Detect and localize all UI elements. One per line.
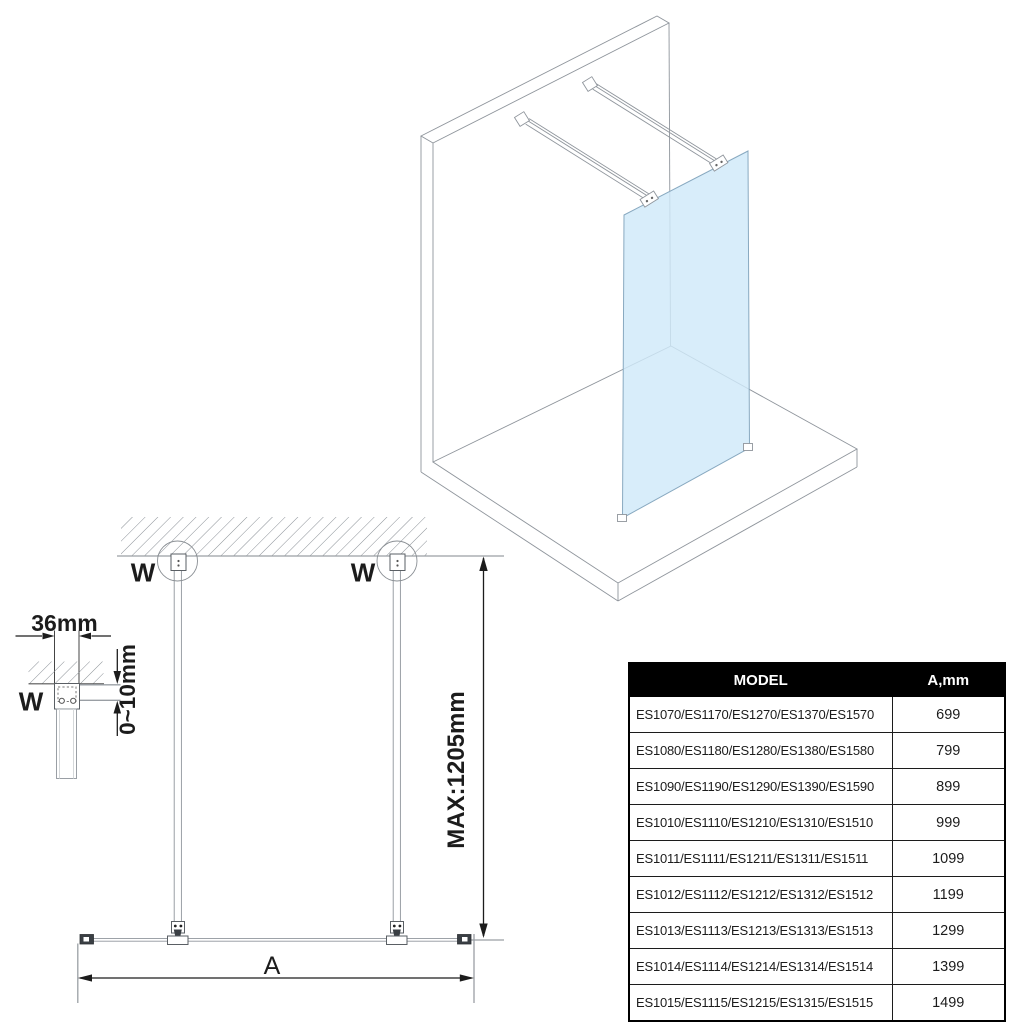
model-cell: ES1010/ES1110/ES1210/ES1310/ES1510 [629, 805, 892, 841]
gap-dimension-label: 0~10mm [115, 644, 140, 735]
max-height-dimension: MAX:1205mm [443, 557, 488, 939]
a-mm-cell: 899 [892, 769, 1005, 805]
support-bar-far [582, 77, 727, 171]
model-cell: ES1070/ES1170/ES1270/ES1370/ES1570 [629, 697, 892, 733]
wall-mount-bracket-far [582, 77, 597, 92]
installation-diagram-page: W W [0, 0, 1024, 1024]
table-header-row: MODEL A,mm [629, 663, 1005, 697]
table-row: ES1090/ES1190/ES1290/ES1390/ES1590 899 [629, 769, 1005, 805]
wall-bracket-left [171, 554, 186, 571]
glass-foot-right [744, 444, 753, 451]
width-dimension-A: A [78, 934, 474, 1003]
column-header-a-mm: A,mm [892, 663, 1005, 697]
table-row: ES1070/ES1170/ES1270/ES1370/ES1570 699 [629, 697, 1005, 733]
bar-glass-clamp-right [387, 922, 408, 945]
glass-foot-left [618, 515, 627, 522]
model-cell: ES1015/ES1115/ES1215/ES1315/ES1515 [629, 985, 892, 1022]
plan-glass-edge [80, 922, 504, 945]
support-bar-near [514, 112, 658, 207]
dim-0-10mm: 0~10mm [114, 644, 141, 736]
table-row: ES1012/ES1112/ES1212/ES1312/ES1512 1199 [629, 877, 1005, 913]
model-cell: ES1012/ES1112/ES1212/ES1312/ES1512 [629, 877, 892, 913]
bracket-detail: 36mm [16, 610, 141, 779]
bracket-screw-right [71, 698, 76, 703]
table-row: ES1011/ES1111/ES1211/ES1311/ES1511 1099 [629, 841, 1005, 877]
detail-bracket-label: W [19, 687, 44, 717]
a-mm-cell: 1199 [892, 877, 1005, 913]
detail-bracket [55, 684, 80, 710]
a-mm-cell: 699 [892, 697, 1005, 733]
table-row: ES1015/ES1115/ES1215/ES1315/ES1515 1499 [629, 985, 1005, 1022]
bracket-width-label: 36mm [31, 610, 97, 636]
iso-drawing [421, 16, 857, 601]
wall-bracket-right [390, 554, 405, 571]
table-row: ES1010/ES1110/ES1210/ES1310/ES1510 999 [629, 805, 1005, 841]
plan-drawing: W W [78, 517, 504, 1003]
width-dimension-label: A [264, 952, 281, 980]
model-cell: ES1080/ES1180/ES1280/ES1380/ES1580 [629, 733, 892, 769]
wall-section-hatch [121, 517, 427, 556]
detail-wall-hatch [29, 662, 104, 684]
bracket-label-right: W [351, 558, 376, 588]
glass-end-clamp-left [80, 935, 94, 945]
spec-table-container: MODEL A,mm ES1070/ES1170/ES1270/ES1370/E… [628, 662, 1006, 1022]
table-row: ES1013/ES1113/ES1213/ES1313/ES1513 1299 [629, 913, 1005, 949]
model-cell: ES1090/ES1190/ES1290/ES1390/ES1590 [629, 769, 892, 805]
bracket-screw-left [59, 698, 64, 703]
spec-table: MODEL A,mm ES1070/ES1170/ES1270/ES1370/E… [628, 662, 1006, 1022]
plan-bar-left [158, 541, 198, 922]
a-mm-cell: 1499 [892, 985, 1005, 1022]
detail-bar [57, 709, 77, 779]
max-dimension-label: MAX:1205mm [443, 691, 470, 848]
model-cell: ES1013/ES1113/ES1213/ES1313/ES1513 [629, 913, 892, 949]
a-mm-cell: 1099 [892, 841, 1005, 877]
a-mm-cell: 999 [892, 805, 1005, 841]
plan-bar-right [377, 541, 417, 922]
a-mm-cell: 799 [892, 733, 1005, 769]
wall-mount-bracket-near [514, 112, 529, 127]
model-cell: ES1014/ES1114/ES1214/ES1314/ES1514 [629, 949, 892, 985]
a-mm-cell: 1299 [892, 913, 1005, 949]
model-cell: ES1011/ES1111/ES1211/ES1311/ES1511 [629, 841, 892, 877]
bar-glass-clamp-left [168, 922, 189, 945]
table-row: ES1014/ES1114/ES1214/ES1314/ES1514 1399 [629, 949, 1005, 985]
glass-end-clamp-right [458, 935, 472, 945]
column-header-model: MODEL [629, 663, 892, 697]
table-row: ES1080/ES1180/ES1280/ES1380/ES1580 799 [629, 733, 1005, 769]
a-mm-cell: 1399 [892, 949, 1005, 985]
bracket-label-left: W [131, 558, 156, 588]
